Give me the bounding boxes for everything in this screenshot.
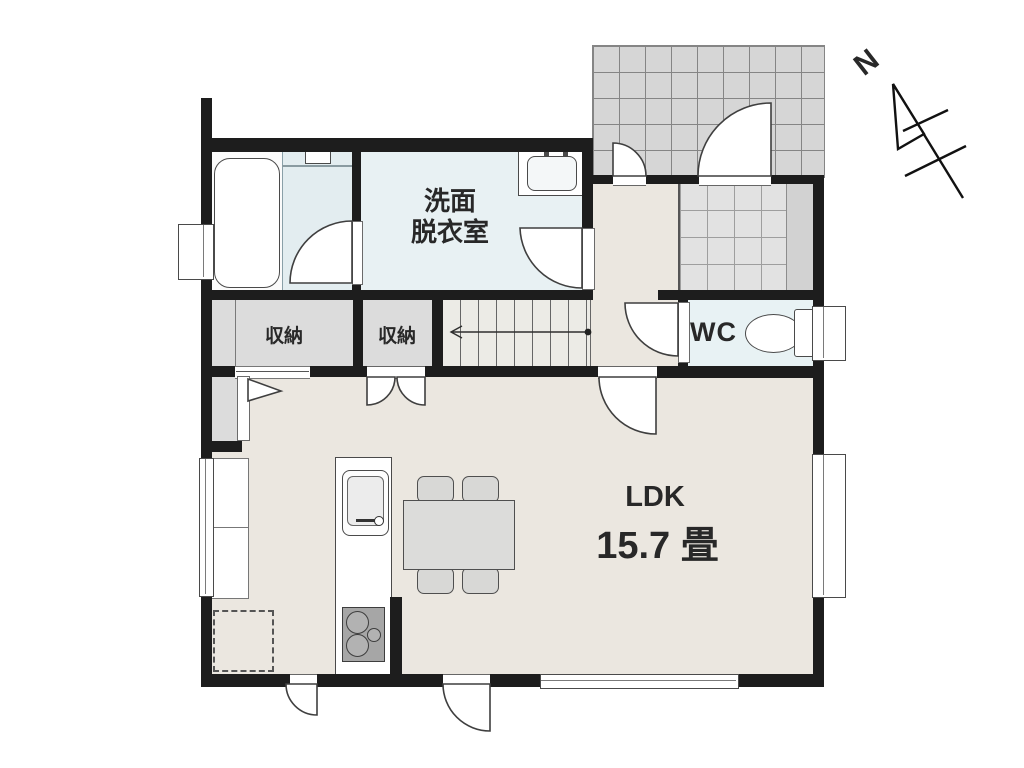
bath-door-swing [290,221,352,283]
compass-needle-triangle [893,84,924,149]
ldk-label: LDK [595,481,715,514]
wc-label: WC [690,317,737,348]
terrace-door-1-swing [286,684,317,715]
hall-ldk-door-swing [599,377,656,434]
symbols-overlay [0,0,1024,768]
service-door-swing [613,143,646,176]
washroom-door-swing [520,228,582,288]
front-door-swing [698,103,771,176]
wc-door-swing [625,303,678,356]
washroom-label: 洗面 脱衣室 [390,186,510,248]
storage-double-door-right [397,377,425,405]
terrace-door-2-swing [443,684,490,731]
closet-folding-door-icon [248,379,281,401]
storage-right-label: 収納 [357,321,437,348]
ldk-area-label: 15.7 畳 [575,514,740,569]
washroom-label-line1: 洗面 [390,186,510,217]
stairs-arrow-origin-dot [585,329,592,336]
floor-plan: 洗面 脱衣室 収納 収納 WC LDK 15.7 畳 N [0,0,1024,768]
compass-tick-2 [905,146,966,176]
storage-double-door-left [367,377,395,405]
storage-left-label: 収納 [244,321,324,348]
washroom-label-line2: 脱衣室 [390,217,510,248]
